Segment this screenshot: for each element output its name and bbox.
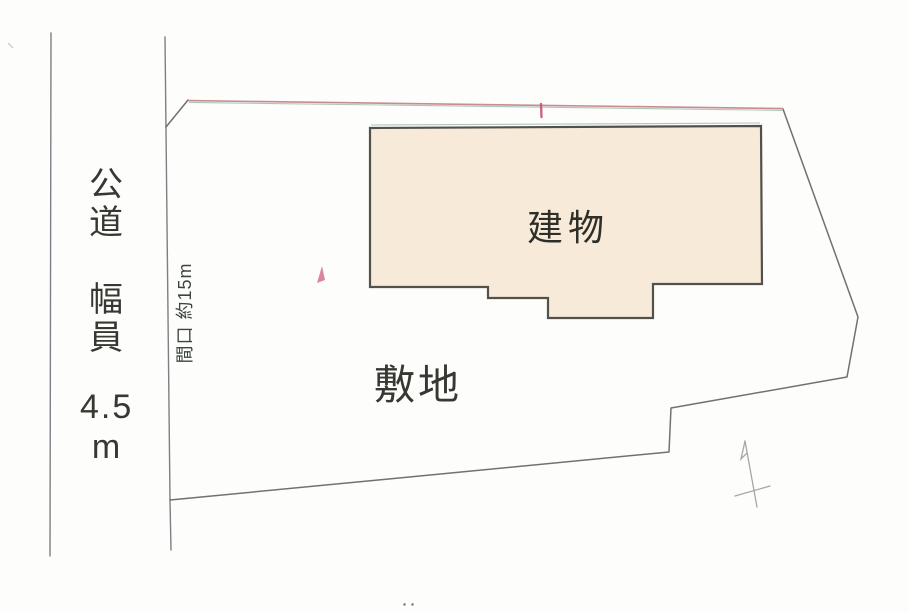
road-name-char: 公: [80, 166, 132, 204]
road-width-unit: m: [80, 428, 132, 466]
building-top-teal-fringe: [371, 123, 760, 125]
plan-geometry: [0, 0, 908, 613]
road-left-edge-line: [50, 33, 51, 556]
site-boundary-top-line: [188, 101, 783, 109]
scan-dot: [411, 603, 413, 605]
site-boundary-top-teal-fringe: [189, 102, 783, 110]
road-width-value: 4.5: [80, 388, 132, 426]
scan-speck: [8, 43, 13, 48]
site-boundary-topleft-diagonal: [166, 100, 188, 127]
scan-dot: [403, 603, 405, 605]
frontage-dimension-label: 間口 約15m: [171, 262, 197, 363]
site-label: 敷地: [374, 351, 462, 411]
building-label: 建物: [527, 199, 609, 251]
pink-arrow-mark: [317, 266, 325, 283]
road-width-char: 員: [80, 319, 132, 357]
boundary-red-tick-mark: [541, 104, 542, 117]
north-arrow-icon: [735, 441, 770, 507]
road-name-char: 道: [80, 204, 132, 242]
road-width-char: 幅: [80, 281, 132, 319]
site-plan-diagram: 公 道 幅 員 4.5 m 間口 約15m 敷地 建物: [0, 0, 908, 613]
